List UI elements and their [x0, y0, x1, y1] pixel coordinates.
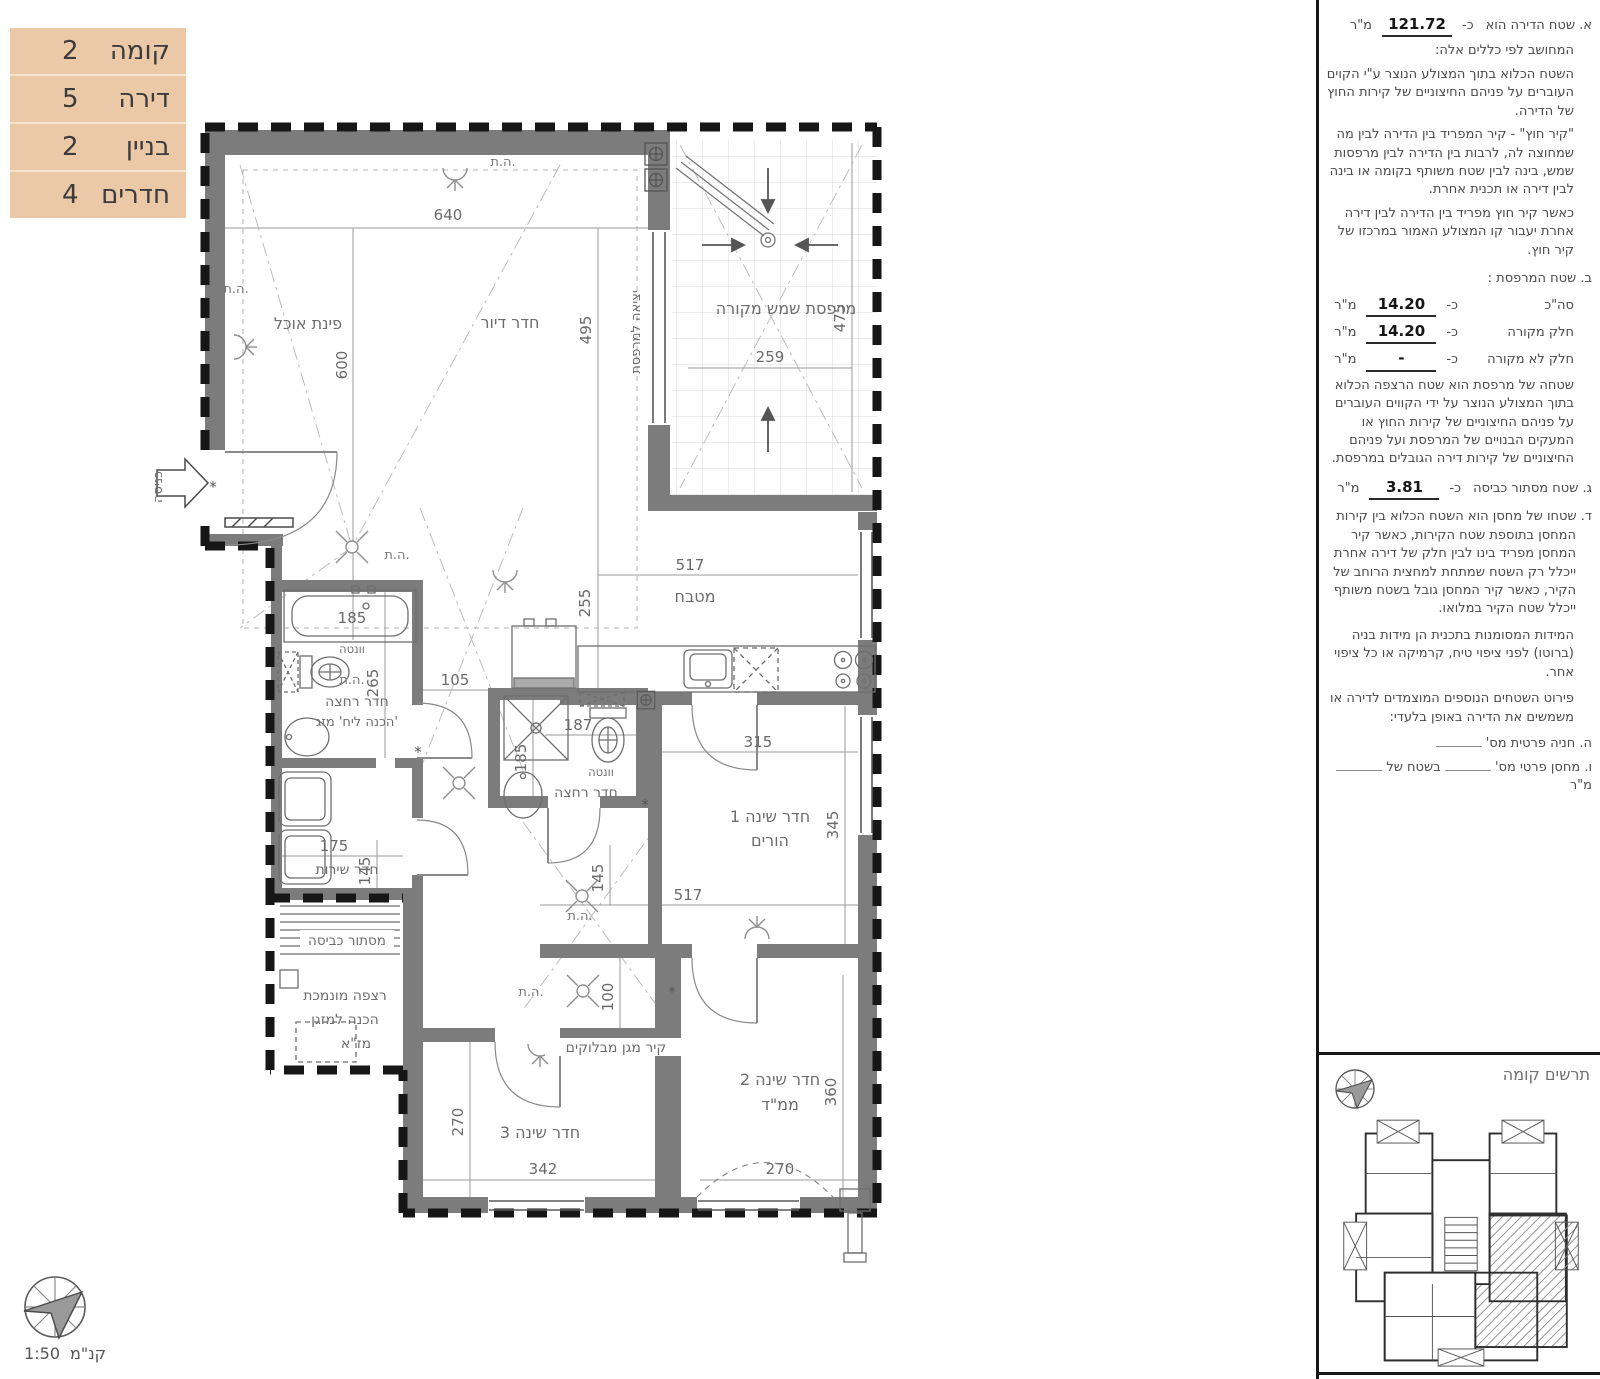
- room-label-exit-balcony: יציאה למרפסת: [629, 290, 644, 374]
- room-label-entrance: כניסה: [151, 471, 166, 503]
- room-label-bed2-line2: ממ"ד: [761, 1095, 799, 1114]
- scale-prefix: קנ"מ: [70, 1344, 106, 1363]
- dim-100: 100: [599, 983, 617, 1012]
- vent-label-1: וונטה: [339, 642, 365, 656]
- svg-text:*: *: [209, 478, 217, 496]
- info-label-building: בניין: [126, 132, 170, 162]
- keyplan-building-drawing: [1341, 1103, 1581, 1368]
- room-label-laundry: מסתור כביסה: [308, 933, 386, 949]
- svg-text:ה.ת.: ה.ת.: [567, 909, 592, 924]
- vent-label-2: וונטה: [588, 765, 614, 779]
- label-lowered-floor-1: רצפה מונמכת: [303, 988, 387, 1004]
- note-a-sub: המחושב לפי כללים אלה:: [1324, 42, 1592, 60]
- dim-187: 187: [564, 716, 593, 734]
- info-value-rooms: 4: [62, 180, 79, 210]
- note-a-label: א. שטח הדירה הוא: [1486, 17, 1592, 35]
- floor-plan: פינת אוכל חדר דיור מרפסת שמש מקורה יציאה…: [0, 0, 1310, 1379]
- keyplan-bottom-border: [1316, 1372, 1600, 1375]
- dim-342: 342: [529, 1160, 558, 1178]
- page: { "info_table": { "rows": [ {"label": "ק…: [0, 0, 1600, 1379]
- dim-175: 175: [320, 837, 349, 855]
- area-notes-panel: א. שטח הדירה הוא כ- 121.72 מ"ר המחושב לפ…: [1324, 10, 1592, 801]
- room-label-bath1-note: הכנה ליח' מזג': [316, 715, 398, 730]
- dim-315: 315: [744, 733, 773, 751]
- room-label-bed2-line1: חדר שינה 2: [740, 1070, 820, 1089]
- dim-600: 600: [333, 351, 351, 380]
- dim-517b: 517: [674, 886, 703, 904]
- balcony-covered-value: 14.20: [1366, 321, 1436, 344]
- balcony-covered-row: חלק מקורה כ- 14.20 מ"ר: [1324, 321, 1592, 344]
- dim-265: 265: [364, 669, 382, 698]
- balcony-uncovered-value: -: [1366, 348, 1436, 371]
- label-lowered-floor-2: הכנה למזגן: [311, 1012, 379, 1028]
- storage-number-blank: [1445, 759, 1491, 771]
- room-label-bed1-line1: חדר שינה 1: [730, 807, 810, 826]
- room-label-dining: פינת אוכל: [274, 314, 342, 333]
- svg-text:ה.ת.: ה.ת.: [384, 548, 409, 563]
- note-a-header: א. שטח הדירה הוא כ- 121.72 מ"ר: [1324, 14, 1592, 37]
- info-label-floor: קומה: [110, 36, 170, 66]
- keyplan-title: תרשים קומה: [1503, 1065, 1590, 1084]
- svg-text:*: *: [641, 796, 649, 814]
- info-row-rooms: חדרים 4: [10, 172, 186, 218]
- note-c-label: ג. שטח מסתור כביסה: [1473, 480, 1592, 498]
- entrance-arrow-icon: [157, 459, 293, 527]
- svg-text:ה.ת.: ה.ת.: [339, 673, 364, 688]
- svg-text:ה.ת.: ה.ת.: [490, 155, 515, 170]
- room-label-bed3: חדר שינה 3: [500, 1123, 580, 1142]
- note-a-paragraph-2: "קיר חוץ" - קיר המפריד בין הדירה לבין מה…: [1324, 126, 1592, 200]
- room-label-bath2: חדר רחצה: [554, 785, 618, 801]
- dim-270b: 270: [766, 1160, 795, 1178]
- north-compass-icon: [24, 1277, 85, 1338]
- room-label-bed1-line2: הורים: [751, 831, 789, 850]
- svg-text:ה.ת.: ה.ת.: [223, 282, 248, 297]
- info-label-rooms: חדרים: [101, 180, 170, 210]
- dim-475: 475: [831, 304, 849, 333]
- note-parking-row: ה. חניה פרטית מס': [1324, 735, 1592, 753]
- apartment-info-table: קומה 2 דירה 5 בניין 2 חדרים 4: [10, 28, 186, 218]
- svg-text:ה.ת.: ה.ת.: [518, 985, 543, 1000]
- dim-270a: 270: [449, 1108, 467, 1137]
- info-row-floor: קומה 2: [10, 28, 186, 76]
- note-e-paragraph: המידות המסומנות בתכנית הן מידות בניה (בר…: [1324, 627, 1592, 682]
- dim-185b: 185: [512, 744, 530, 773]
- info-value-apartment: 5: [62, 84, 79, 114]
- info-value-building: 2: [62, 132, 79, 162]
- label-lowered-floor-3: מז"א: [341, 1036, 371, 1052]
- dim-345: 345: [824, 811, 842, 840]
- info-label-apartment: דירה: [118, 84, 170, 114]
- note-a-paragraph-3: כאשר קיר חוץ מפריד בין הדירה לבין דירה א…: [1324, 205, 1592, 260]
- svg-text:*: *: [414, 743, 422, 761]
- dim-185a: 185: [338, 609, 367, 627]
- note-b-title: ב. שטח המרפסת :: [1324, 270, 1592, 288]
- balcony-total-value: 14.20: [1366, 294, 1436, 317]
- dim-517a: 517: [676, 556, 705, 574]
- room-label-kitchen: מטבח: [675, 587, 716, 606]
- storage-area-blank: [1336, 759, 1382, 771]
- room-label-living: חדר דיור: [480, 313, 539, 332]
- dim-495: 495: [577, 316, 595, 345]
- dim-105: 105: [441, 671, 470, 689]
- info-value-floor: 2: [62, 36, 79, 66]
- svg-text:*: *: [668, 983, 676, 1001]
- note-d-paragraph: ד. שטחו של מחסן הוא השטח הכלוא בין קירות…: [1324, 508, 1592, 619]
- parking-number-blank: [1436, 735, 1482, 747]
- scale-label: קנ"מ 1:50: [10, 1344, 106, 1363]
- apartment-area-value: 121.72: [1382, 14, 1452, 37]
- dim-145b: 145: [589, 864, 607, 893]
- info-row-apartment: דירה 5: [10, 76, 186, 124]
- note-storage-row: ו. מחסן פרטי מס' בשטח של מ"ר: [1324, 759, 1592, 796]
- keyplan-panel: תרשים קומה: [1319, 1055, 1600, 1372]
- balcony-total-row: סה"כ כ- 14.20 מ"ר: [1324, 294, 1592, 317]
- dim-360: 360: [822, 1078, 840, 1107]
- scale-value: 1:50: [24, 1344, 60, 1363]
- note-a-paragraph-1: השטח הכלוא בתוך המצולע הנוצר ע"י הקוים ה…: [1324, 66, 1592, 121]
- note-b-paragraph: שטחה של מרפסת הוא שטח הרצפה הכלוא בתוך ה…: [1324, 377, 1592, 469]
- dim-640: 640: [434, 206, 463, 224]
- dim-255: 255: [576, 589, 594, 618]
- info-row-building: בניין 2: [10, 124, 186, 172]
- dim-145a: 145: [356, 857, 374, 886]
- balcony-uncovered-row: חלק לא מקורה כ- - מ"ר: [1324, 348, 1592, 371]
- laundry-screen-area-value: 3.81: [1369, 477, 1439, 500]
- label-block-wall: קיר מגן מבלוקים: [566, 1040, 667, 1056]
- dim-259: 259: [756, 348, 785, 366]
- note-f-paragraph: פירוט השטחים הנוספים המוצמדים לדירה או מ…: [1324, 690, 1592, 727]
- note-c-row: ג. שטח מסתור כביסה כ- 3.81 מ"ר: [1324, 477, 1592, 500]
